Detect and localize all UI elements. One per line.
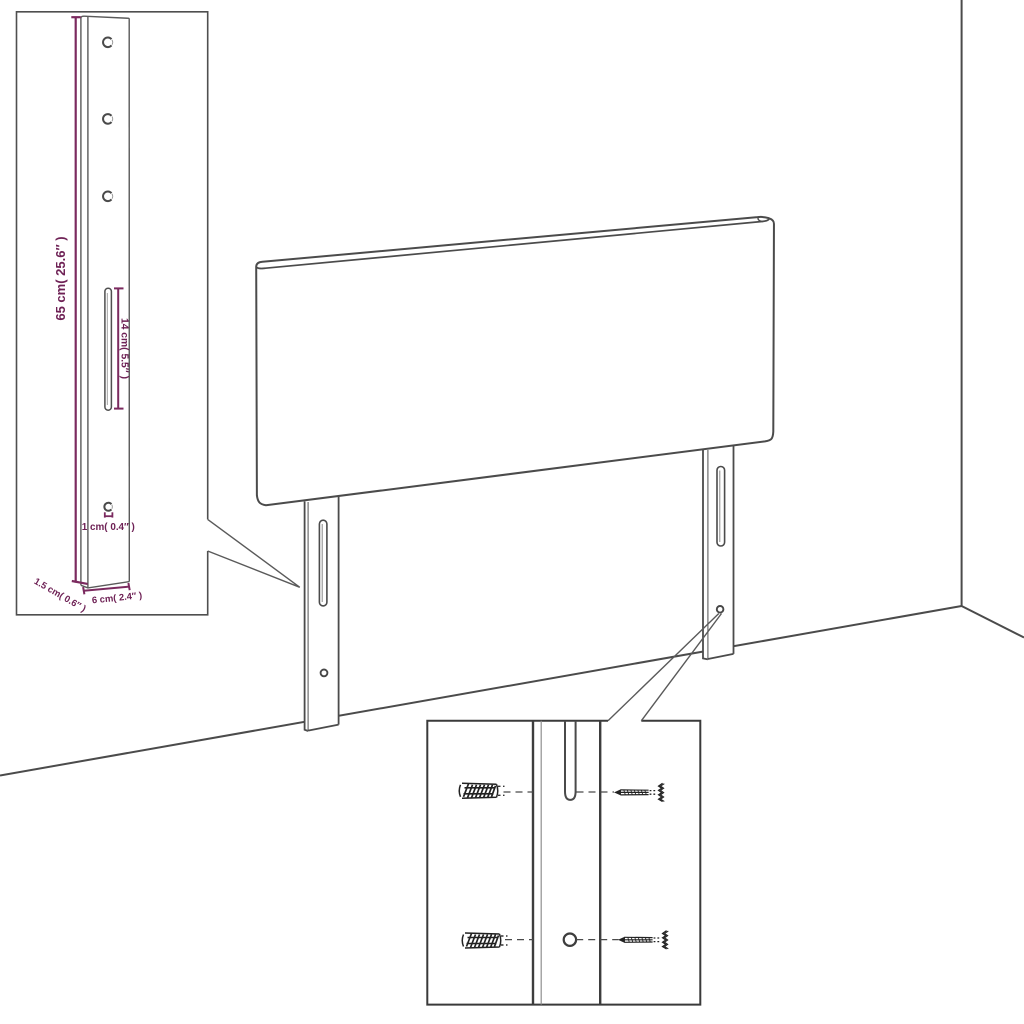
svg-text:1 cm( 0.4″ ): 1 cm( 0.4″ ) [82,522,135,533]
svg-text:65 cm( 25.6″ ): 65 cm( 25.6″ ) [53,236,68,320]
svg-text:14 cm( 5.5″ ): 14 cm( 5.5″ ) [118,318,129,379]
